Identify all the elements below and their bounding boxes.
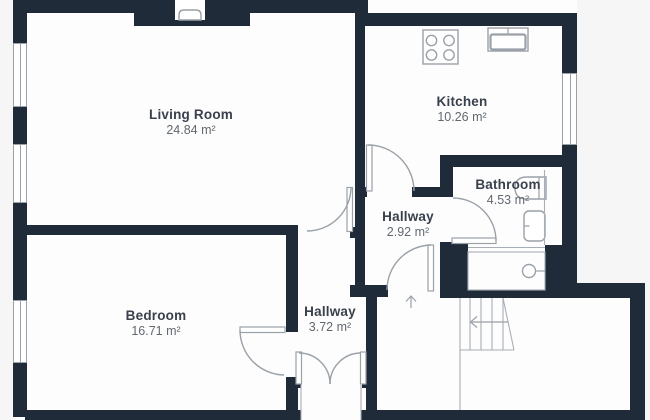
door-leaf-double-left [296,352,302,384]
room-label-living-room: Living Room 24.84 m² [149,107,233,137]
double-door-threshold [301,385,361,420]
floor-plan: Living Room 24.84 m² Kitchen 10.26 m² Ba… [0,0,650,420]
door-arc-entrance [387,245,431,290]
room-area: 16.71 m² [126,324,187,338]
room-name: Hallway [304,304,356,319]
stairs-steps [470,298,503,350]
room-area: 4.53 m² [475,193,540,207]
door-arc-kitchen [368,145,414,191]
room-name: Hallway [382,209,434,224]
stove-burner [426,50,436,60]
door-leaf-livingroom [347,188,353,232]
door-leaf-entrance [428,245,434,291]
stove-burner [444,50,454,60]
room-name: Bathroom [475,177,540,192]
boiler-icon [523,265,536,278]
stairs-direction-arrow [471,317,509,328]
room-area: 24.84 m² [149,123,233,137]
room-name: Bedroom [126,308,187,323]
door-arc-bedroom [240,330,284,375]
room-label-bedroom: Bedroom 16.71 m² [126,308,187,338]
stairs-diagonal [503,298,514,350]
door-leaf-double-right [361,352,367,384]
door-leaf-bathroom [452,238,496,244]
stove-burner [426,35,436,45]
room-area: 2.92 m² [382,225,434,239]
chimney-flue-icon [179,10,201,20]
stove-burner [444,35,454,45]
door-arc-double-right [330,353,361,384]
room-area: 3.72 m² [304,320,356,334]
room-label-hallway-lower: Hallway 3.72 m² [304,304,356,334]
room-area: 10.26 m² [437,110,488,124]
room-name: Kitchen [437,94,488,109]
door-leaf-kitchen [367,145,373,191]
room-label-kitchen: Kitchen 10.26 m² [437,94,488,124]
door-leaf-bedroom [240,327,285,333]
door-arc-livingroom [307,187,351,231]
room-name: Living Room [149,107,233,122]
entrance-up-arrow [406,296,416,308]
door-arc-double-left [299,353,330,384]
symbols-layer [0,0,650,420]
room-label-bathroom: Bathroom 4.53 m² [475,177,540,207]
room-label-hallway-upper: Hallway 2.92 m² [382,209,434,239]
